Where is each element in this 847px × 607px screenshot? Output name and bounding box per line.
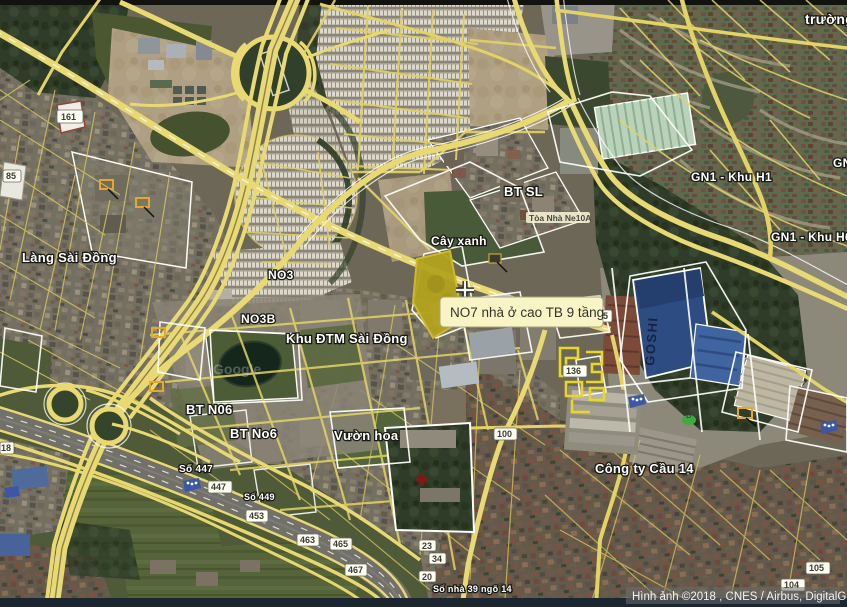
svg-text:Google: Google xyxy=(213,361,261,377)
svg-text:465: 465 xyxy=(333,539,348,549)
svg-text:453: 453 xyxy=(249,511,264,521)
svg-text:Số nhà 39 ngõ 14: Số nhà 39 ngõ 14 xyxy=(433,584,512,594)
svg-text:trường: trường xyxy=(805,11,847,27)
svg-text:Công ty Cầu 14: Công ty Cầu 14 xyxy=(595,461,694,476)
svg-text:20: 20 xyxy=(422,572,432,582)
svg-text:NO7 nhà ở cao TB 9 tầng: NO7 nhà ở cao TB 9 tầng xyxy=(450,305,604,320)
svg-text:Số 449: Số 449 xyxy=(244,492,275,502)
svg-text:GN1 - Khu H1: GN1 - Khu H1 xyxy=(691,170,772,184)
svg-text:BT SL: BT SL xyxy=(504,184,543,199)
svg-text:18: 18 xyxy=(1,443,11,453)
svg-text:BT N06: BT N06 xyxy=(186,402,233,417)
svg-text:85: 85 xyxy=(6,171,16,181)
svg-text:463: 463 xyxy=(300,535,315,545)
svg-text:Khu ĐTM Sài Đồng: Khu ĐTM Sài Đồng xyxy=(286,331,408,346)
svg-text:Số 447: Số 447 xyxy=(179,463,213,475)
svg-text:34: 34 xyxy=(432,554,442,564)
svg-text:467: 467 xyxy=(348,565,363,575)
svg-text:23: 23 xyxy=(422,541,432,551)
svg-text:Tòa Nhà Ne10A: Tòa Nhà Ne10A xyxy=(529,213,591,223)
svg-text:B: B xyxy=(686,411,691,420)
svg-text:NO3B: NO3B xyxy=(241,312,276,326)
svg-text:105: 105 xyxy=(809,563,824,573)
svg-text:Làng Sài Đồng: Làng Sài Đồng xyxy=(22,250,117,265)
svg-text:447: 447 xyxy=(211,482,226,492)
svg-text:136: 136 xyxy=(566,366,581,376)
svg-text:100: 100 xyxy=(497,429,512,439)
svg-text:BT No6: BT No6 xyxy=(230,426,277,441)
svg-text:Hình ảnh ©2018 , CNES / Airbus: Hình ảnh ©2018 , CNES / Airbus, DigitalG… xyxy=(632,591,847,603)
svg-text:161: 161 xyxy=(61,112,76,122)
svg-text:GN: GN xyxy=(833,156,847,170)
svg-text:Cây xanh: Cây xanh xyxy=(431,234,487,248)
svg-text:GN1 - Khu H6: GN1 - Khu H6 xyxy=(771,230,847,244)
svg-text:NO3: NO3 xyxy=(268,268,294,282)
svg-text:Vườn hoa: Vườn hoa xyxy=(334,428,399,443)
